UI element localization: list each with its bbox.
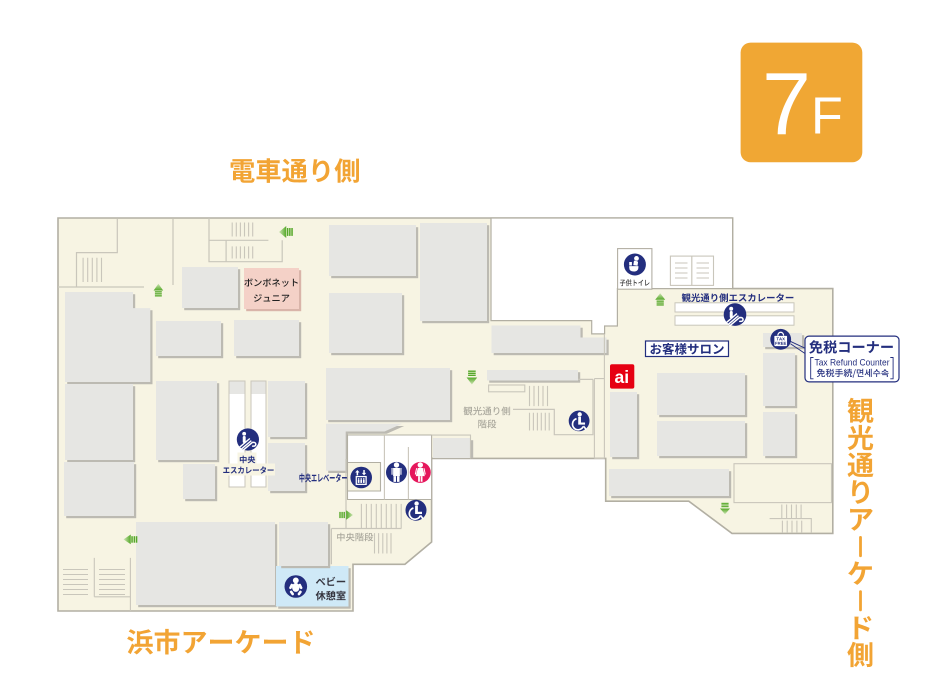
- svg-text:Tax Refund Counter: Tax Refund Counter: [815, 357, 891, 368]
- svg-text:7: 7: [762, 54, 811, 153]
- svg-text:F: F: [811, 88, 843, 146]
- svg-text:ai: ai: [614, 367, 629, 387]
